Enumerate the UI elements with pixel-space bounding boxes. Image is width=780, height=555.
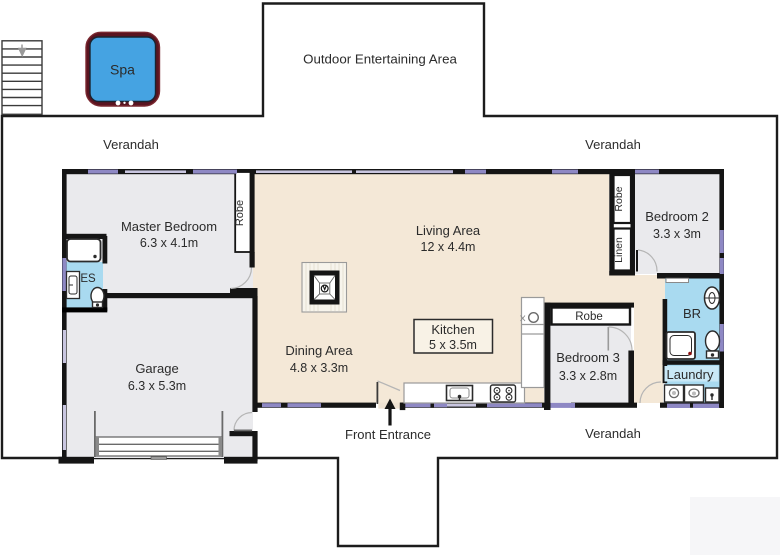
svg-text:Bedroom 2: Bedroom 2: [645, 209, 709, 224]
svg-text:3.3 x 3m: 3.3 x 3m: [653, 227, 701, 241]
svg-text:Dining Area: Dining Area: [285, 343, 353, 358]
svg-text:Robe: Robe: [575, 311, 603, 323]
svg-text:ES: ES: [80, 273, 96, 285]
svg-text:Verandah: Verandah: [585, 426, 641, 441]
svg-text:6.3 x 5.3m: 6.3 x 5.3m: [128, 379, 186, 393]
svg-text:Spa: Spa: [110, 62, 135, 78]
svg-text:Master Bedroom: Master Bedroom: [121, 219, 217, 234]
svg-text:Kitchen: Kitchen: [431, 322, 474, 337]
svg-text:Garage: Garage: [135, 361, 178, 376]
svg-text:Living Area: Living Area: [416, 223, 481, 238]
svg-text:Linen: Linen: [613, 237, 625, 263]
svg-text:Laundry: Laundry: [667, 367, 714, 382]
svg-text:4.8 x 3.3m: 4.8 x 3.3m: [290, 361, 348, 375]
svg-text:Verandah: Verandah: [585, 137, 641, 152]
svg-text:Robe: Robe: [613, 186, 625, 211]
svg-text:Robe: Robe: [234, 200, 246, 226]
svg-text:Front Entrance: Front Entrance: [345, 427, 431, 442]
svg-text:3.3 x 2.8m: 3.3 x 2.8m: [559, 369, 617, 383]
svg-text:Bedroom 3: Bedroom 3: [556, 350, 620, 365]
svg-text:Verandah: Verandah: [103, 137, 159, 152]
svg-text:12 x 4.4m: 12 x 4.4m: [421, 240, 476, 254]
svg-text:Outdoor Entertaining Area: Outdoor Entertaining Area: [303, 52, 457, 67]
svg-text:5 x 3.5m: 5 x 3.5m: [429, 338, 477, 352]
svg-text:BR: BR: [683, 306, 701, 321]
svg-text:6.3 x 4.1m: 6.3 x 4.1m: [140, 236, 198, 250]
